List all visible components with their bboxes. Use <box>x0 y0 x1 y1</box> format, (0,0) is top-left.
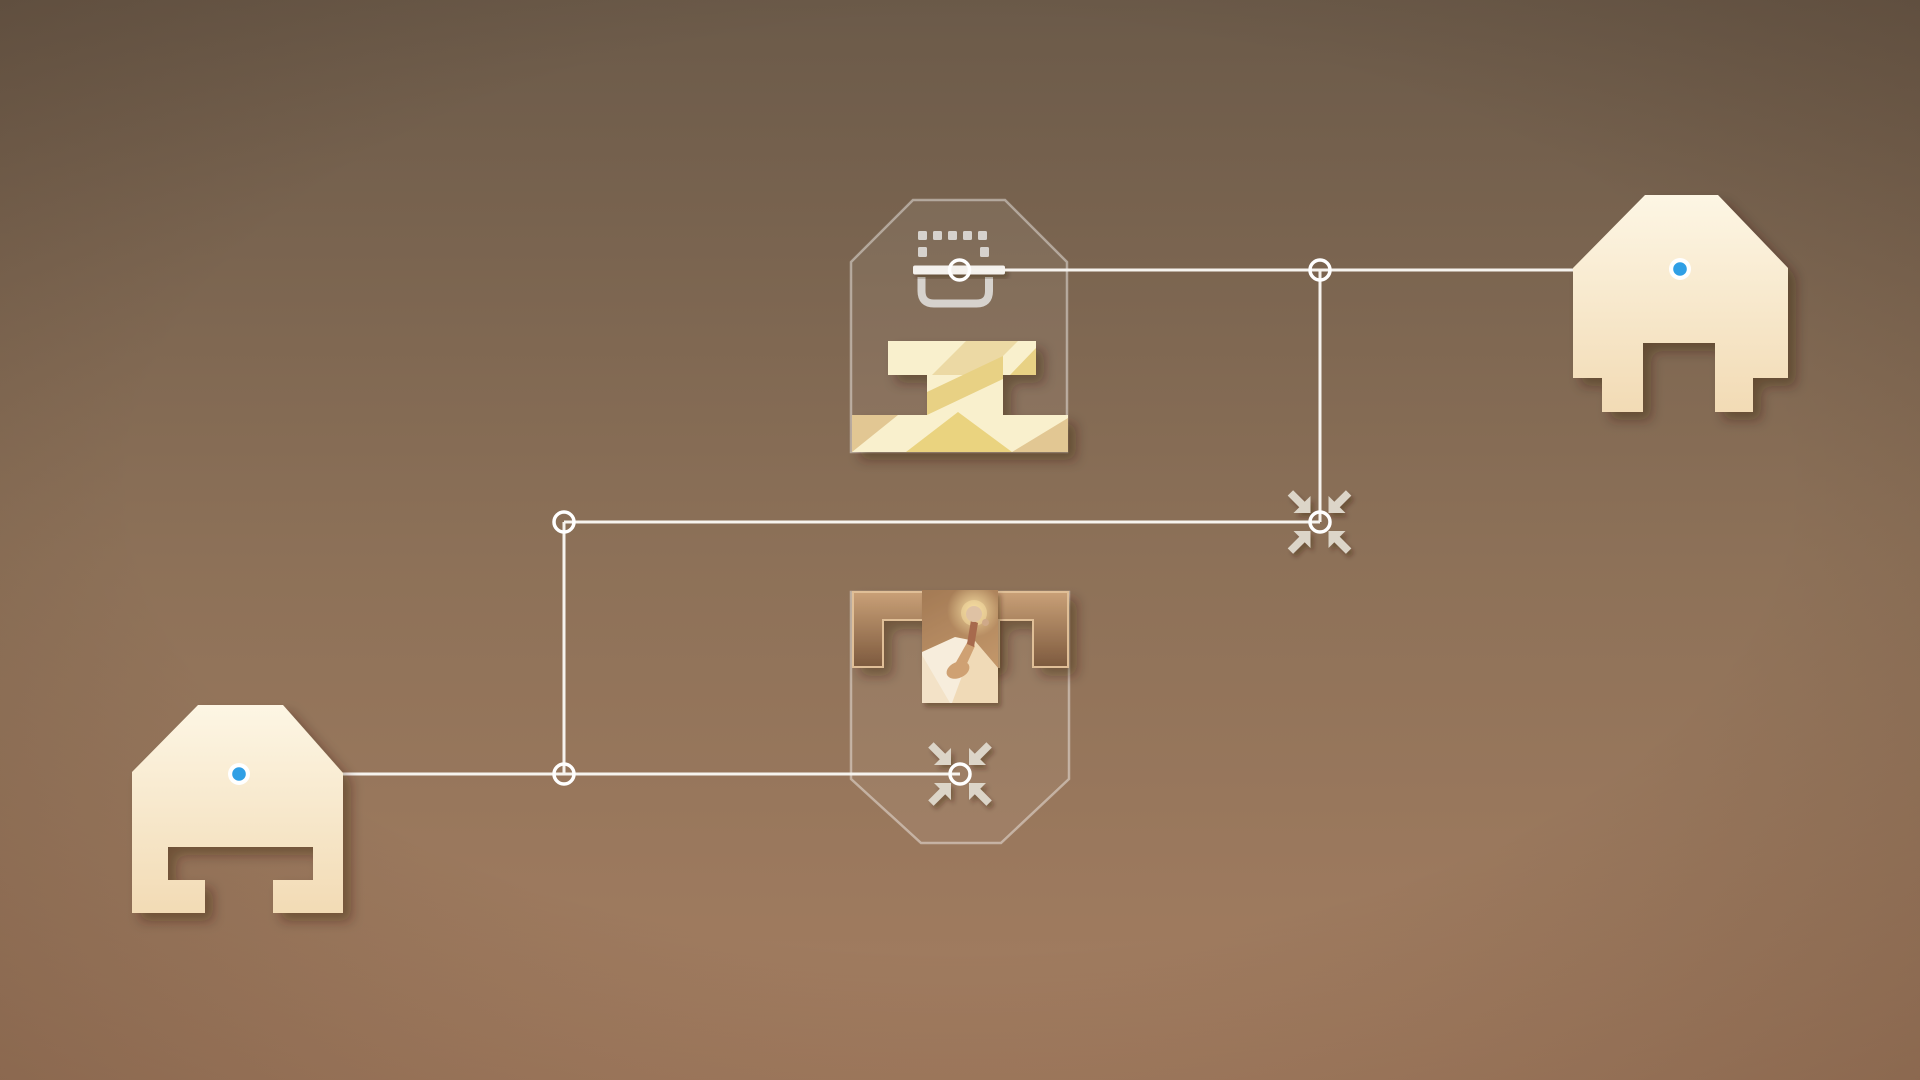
child-head <box>982 619 989 626</box>
progress-dot-left <box>228 763 250 785</box>
level-panel-bottom[interactable] <box>851 583 1069 843</box>
figure-head <box>966 606 982 622</box>
vignette-overlay <box>0 0 1920 1080</box>
chapter-map <box>0 0 1920 1080</box>
progress-dot-right <box>1669 258 1691 280</box>
level-thumbnail-figure-dune[interactable] <box>922 583 1001 703</box>
level-panel-top[interactable] <box>851 200 1068 452</box>
